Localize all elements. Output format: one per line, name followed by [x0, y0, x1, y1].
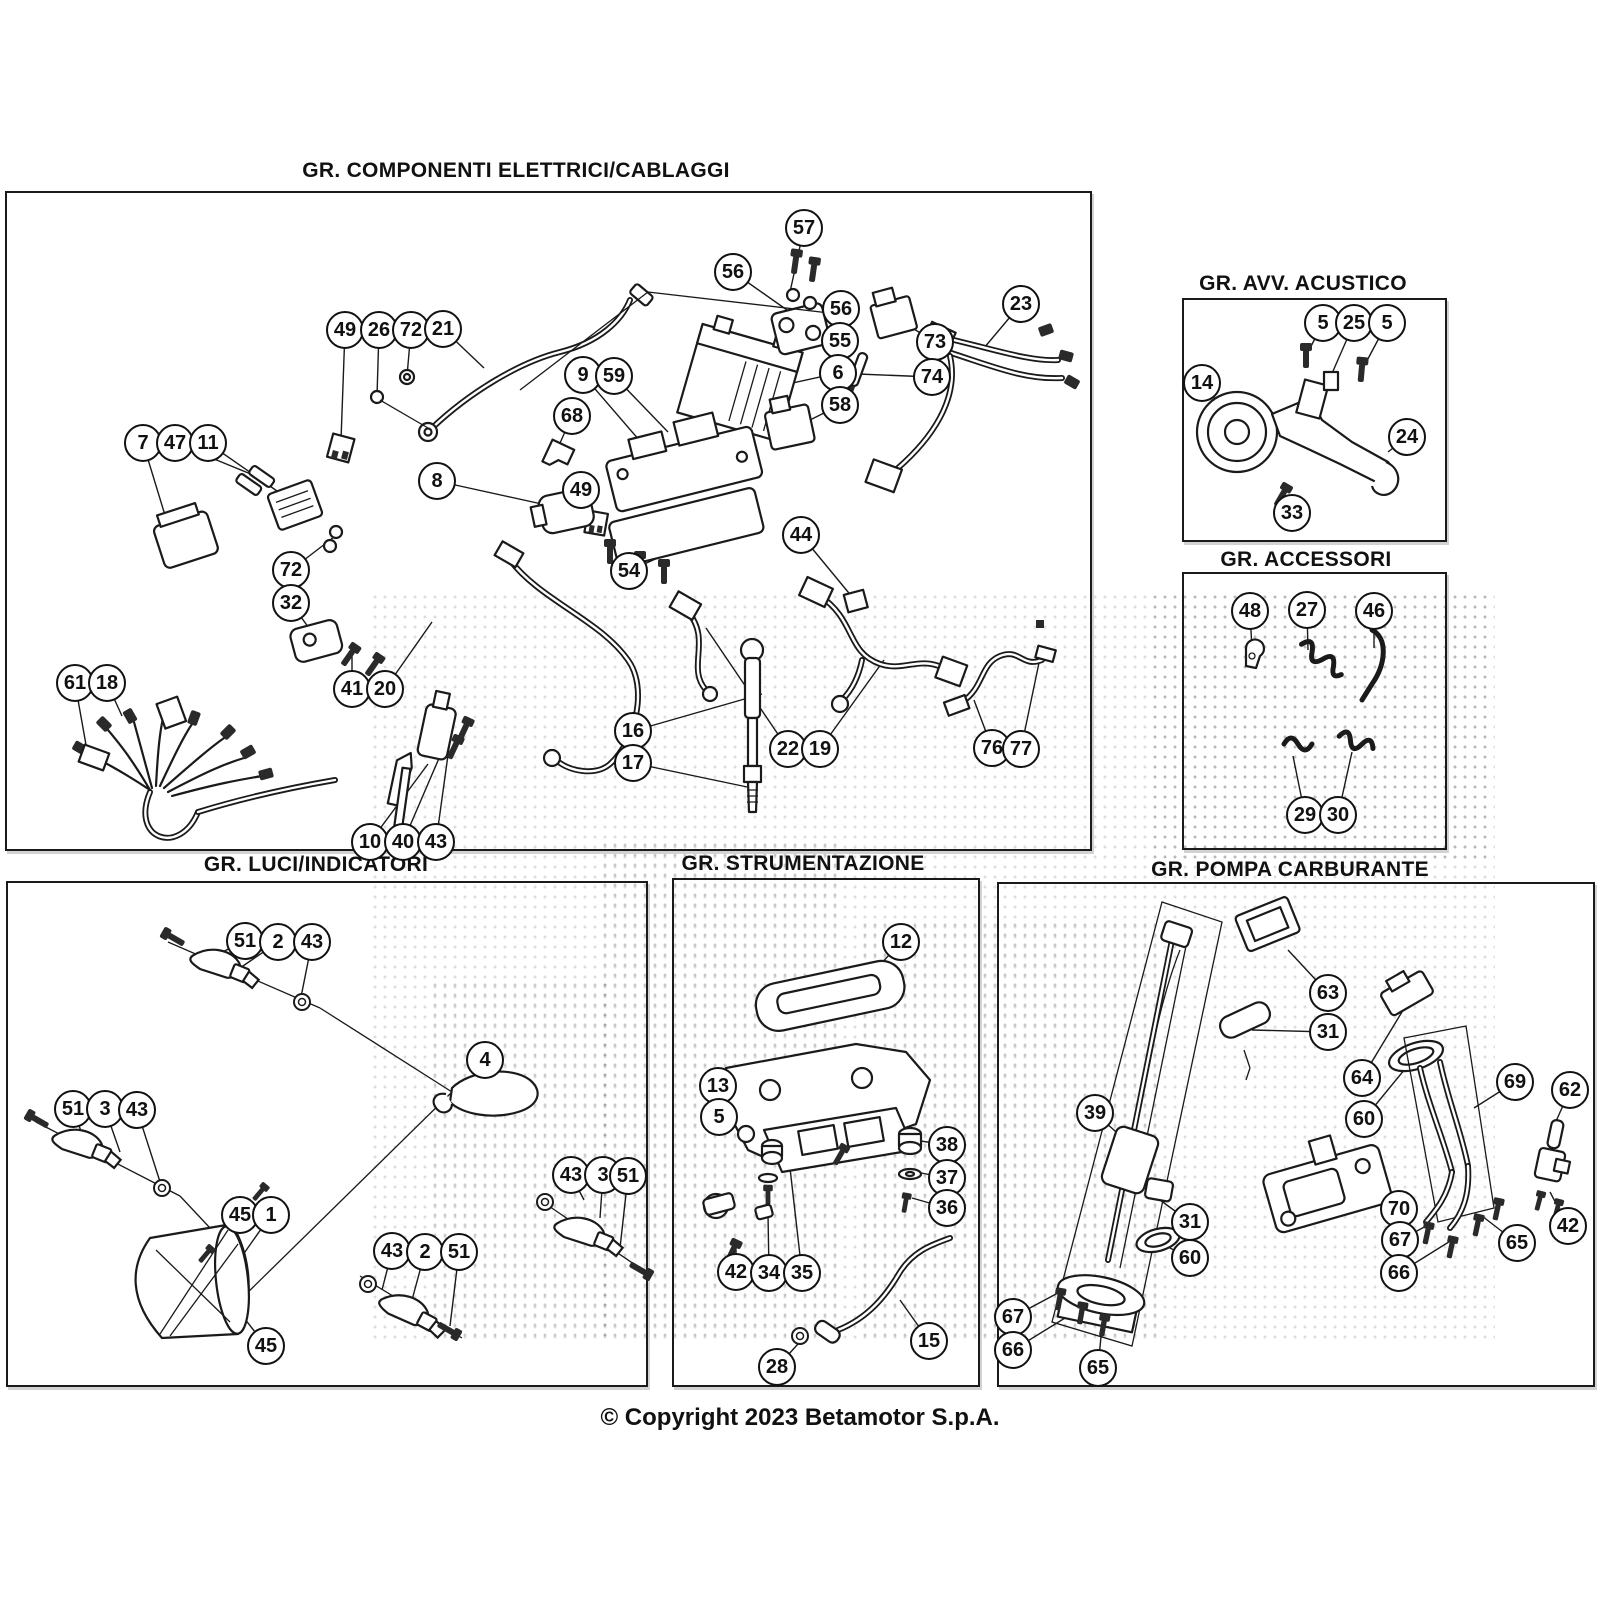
regulator-11-drawing [267, 479, 323, 530]
callout-pompa-60[interactable]: 60 [1171, 1239, 1209, 1277]
callout-strumentazione-12[interactable]: 12 [882, 923, 920, 961]
callout-luci-43[interactable]: 43 [293, 923, 331, 961]
speedo-bracket-drawing [724, 1044, 930, 1172]
callout-elettrici-58[interactable]: 58 [821, 386, 859, 424]
cable-22-drawing [670, 591, 717, 701]
ignition-coil-drawing [388, 686, 475, 838]
callout-accessori-30[interactable]: 30 [1319, 796, 1357, 834]
callout-luci-1[interactable]: 1 [252, 1196, 290, 1234]
indicators-drawing [23, 926, 655, 1341]
callout-elettrici-17[interactable]: 17 [614, 744, 652, 782]
callout-luci-43[interactable]: 43 [118, 1091, 156, 1129]
callout-acustico-14[interactable]: 14 [1183, 364, 1221, 402]
callout-elettrici-68[interactable]: 68 [553, 397, 591, 435]
horn-drawing [1197, 343, 1398, 509]
speedometer-drawing [752, 957, 909, 1035]
callout-pompa-65[interactable]: 65 [1079, 1349, 1117, 1387]
callout-elettrici-74[interactable]: 74 [913, 358, 951, 396]
callout-pompa-65[interactable]: 65 [1498, 1224, 1536, 1262]
callout-pompa-31[interactable]: 31 [1309, 1013, 1347, 1051]
callout-elettrici-57[interactable]: 57 [785, 209, 823, 247]
callout-strumentazione-28[interactable]: 28 [758, 1348, 796, 1386]
callout-strumentazione-36[interactable]: 36 [928, 1189, 966, 1227]
callout-elettrici-77[interactable]: 77 [1002, 730, 1040, 768]
callout-elettrici-54[interactable]: 54 [610, 552, 648, 590]
callout-elettrici-19[interactable]: 19 [801, 730, 839, 768]
relay-44-drawing [844, 590, 868, 613]
washer-72-drawing [330, 526, 342, 538]
callout-pompa-31[interactable]: 31 [1171, 1203, 1209, 1241]
callout-luci-51[interactable]: 51 [609, 1157, 647, 1195]
callout-pompa-64[interactable]: 64 [1343, 1059, 1381, 1097]
callout-elettrici-73[interactable]: 73 [916, 323, 954, 361]
callout-elettrici-23[interactable]: 23 [1002, 285, 1040, 323]
gasket-60-drawing [1385, 1035, 1446, 1077]
ground-cable-20-drawing [338, 541, 638, 771]
callout-elettrici-18[interactable]: 18 [88, 664, 126, 702]
callout-elettrici-8[interactable]: 8 [418, 462, 456, 500]
fuel-sensor-62-drawing [1532, 1118, 1578, 1220]
callout-elettrici-49[interactable]: 49 [562, 471, 600, 509]
wiring-harness-61-18-drawing [71, 697, 335, 838]
callout-acustico-24[interactable]: 24 [1388, 418, 1426, 456]
callout-elettrici-21[interactable]: 21 [424, 310, 462, 348]
callout-pompa-62[interactable]: 62 [1551, 1071, 1589, 1109]
main-harness-23-drawing [866, 322, 1081, 492]
switch-73-drawing [867, 284, 918, 339]
callout-pompa-66[interactable]: 66 [1380, 1254, 1418, 1292]
pump-holder-63-drawing [1235, 896, 1301, 952]
callout-luci-51[interactable]: 51 [440, 1233, 478, 1271]
callout-pompa-69[interactable]: 69 [1496, 1063, 1534, 1101]
callout-elettrici-20[interactable]: 20 [366, 670, 404, 708]
callout-luci-2[interactable]: 2 [259, 923, 297, 961]
callout-luci-4[interactable]: 4 [466, 1041, 504, 1079]
callout-accessori-48[interactable]: 48 [1231, 592, 1269, 630]
washer-72b-drawing [324, 540, 336, 552]
callout-luci-2[interactable]: 2 [406, 1233, 444, 1271]
callout-acustico-5[interactable]: 5 [1368, 304, 1406, 342]
callout-strumentazione-15[interactable]: 15 [910, 1322, 948, 1360]
callout-acustico-33[interactable]: 33 [1273, 494, 1311, 532]
callout-accessori-46[interactable]: 46 [1355, 592, 1393, 630]
bracket-64-drawing [1376, 963, 1435, 1016]
callout-elettrici-59[interactable]: 59 [595, 357, 633, 395]
callout-elettrici-32[interactable]: 32 [272, 584, 310, 622]
callout-elettrici-44[interactable]: 44 [782, 516, 820, 554]
callout-elettrici-43[interactable]: 43 [417, 823, 455, 861]
callout-accessori-27[interactable]: 27 [1288, 591, 1326, 629]
callout-strumentazione-35[interactable]: 35 [783, 1254, 821, 1292]
callout-pompa-63[interactable]: 63 [1309, 974, 1347, 1012]
callout-elettrici-56[interactable]: 56 [714, 253, 752, 291]
ecu-7-drawing [149, 501, 219, 570]
callout-pompa-60[interactable]: 60 [1345, 1100, 1383, 1138]
callout-elettrici-11[interactable]: 11 [189, 424, 227, 462]
callout-luci-45[interactable]: 45 [247, 1327, 285, 1365]
cable-19-drawing [799, 577, 967, 712]
callout-pompa-42[interactable]: 42 [1549, 1207, 1587, 1245]
parts-catalog-diagram-page: © Copyright 2023 Betamotor S.p.A. GR. CO… [0, 0, 1600, 1600]
relay-58-drawing [762, 392, 815, 450]
accessories-drawing [1246, 630, 1383, 755]
callout-strumentazione-5[interactable]: 5 [700, 1098, 738, 1136]
callout-elettrici-49[interactable]: 49 [326, 311, 364, 349]
callout-pompa-39[interactable]: 39 [1076, 1094, 1114, 1132]
sensor-32-drawing [289, 618, 344, 663]
callout-pompa-66[interactable]: 66 [994, 1331, 1032, 1369]
